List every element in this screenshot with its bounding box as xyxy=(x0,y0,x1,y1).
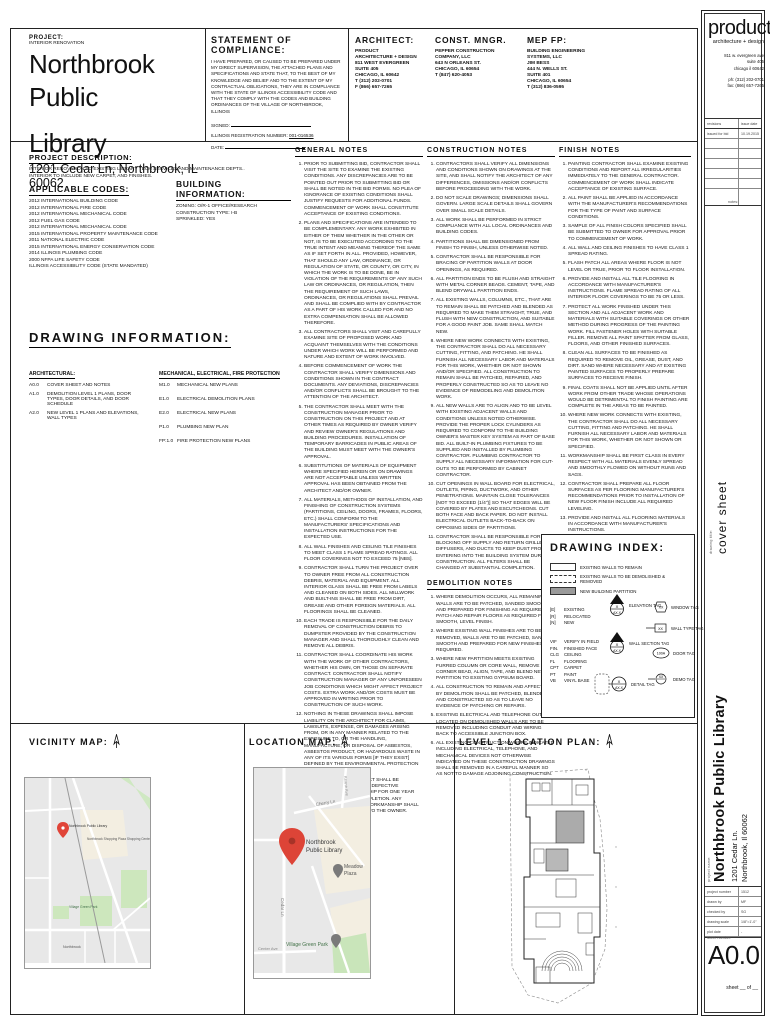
location-map: Northbrook Public Library Cherry Ln Ceda… xyxy=(253,767,371,979)
sheet-of: sheet __ of __ xyxy=(705,985,761,991)
drawing-index-box: DRAWING INDEX: EXISTING WALLS TO REMAIN … xyxy=(541,534,695,718)
architectural-heading: ARCHITECTURAL: xyxy=(29,371,75,379)
wall-type-tag-icon: XX WALL TYPE TAG xyxy=(646,623,704,633)
mep-title: MEP FP: xyxy=(527,35,613,45)
architect-lines: PRODUCTARCHITECTURE + DESIGN811 WEST EVE… xyxy=(355,49,433,90)
compliance-block: STATEMENT OF COMPLIANCE: I HAVE PREPARED… xyxy=(211,35,343,151)
svg-text:100A: 100A xyxy=(657,652,666,656)
construction-manager-block: CONST. MNGR. PEPPER CONSTRUCTIONCOMPANY,… xyxy=(435,35,521,79)
legend-existing-wall-label: EXISTING WALLS TO REMAIN xyxy=(580,565,642,570)
mep-drawings-list: M1.0MECHANICAL NEW PLANSE1.0ELECTRICAL D… xyxy=(159,383,289,444)
drawing-information-title: DRAWING INFORMATION: xyxy=(29,330,231,348)
building-information-title: BUILDING INFORMATION: xyxy=(176,179,291,201)
header-divider-2 xyxy=(348,29,349,141)
applicable-codes-title: APPLICABLE CODES: xyxy=(29,184,129,196)
general-notes-title: GENERAL NOTES xyxy=(295,147,423,157)
project-name-area: project name: Northbrook Public Library … xyxy=(705,562,763,882)
svg-text:XX: XX xyxy=(659,606,664,610)
level1-plan-graphic xyxy=(510,769,617,1003)
mep-fp-block: MEP FP: BUILDING ENGINEERINGSYSTEMS, LLC… xyxy=(527,35,613,91)
main-drawing-frame: PROJECT: INTERIOR RENOVATION Northbrook … xyxy=(10,28,698,1015)
demolition-notes-list: WHERE DEMOLITION OCCURS, ALL REMAINING W… xyxy=(427,595,555,778)
maps-divider-1 xyxy=(244,723,245,1014)
drawing-title: cover sheet xyxy=(715,399,729,554)
maps-divider-2 xyxy=(454,723,455,1014)
construction-notes-title: CONSTRUCTION NOTES xyxy=(427,147,555,157)
center-ave-label: Center Ave xyxy=(258,946,278,951)
meadow-plaza-label-1: Meadow xyxy=(344,864,363,870)
legend-demolished-wall-label: EXISTING WALLS TO BE DEMOLISHED & REMOVE… xyxy=(580,574,680,584)
firm-logo: product xyxy=(708,18,764,38)
construction-notes-list: CONTRACTORS SHALL VERIFY ALL DIMENSIONS … xyxy=(427,162,555,572)
maps-band-separator xyxy=(11,723,697,724)
firm-logo-block: product architecture + design 811 w. eve… xyxy=(705,18,767,89)
mep-heading: MECHANICAL, ELECTRICAL, FIRE PROTECTION xyxy=(159,371,280,379)
revision-table: revisionsissue date issued for bid10.19.… xyxy=(705,118,761,206)
finish-notes-title: FINISH NOTES xyxy=(559,147,691,157)
firm-fax: fax: (866) 657-7265 xyxy=(708,83,764,89)
applicable-codes-section: APPLICABLE CODES: 2012 INTERNATIONAL BUI… xyxy=(29,179,169,271)
north-arrow-icon xyxy=(605,734,614,749)
mep-lines: BUILDING ENGINEERINGSYSTEMS, LLCJIM BESS… xyxy=(527,49,613,90)
svg-text:XX: XX xyxy=(659,675,664,679)
project-name-label: project name: xyxy=(707,562,711,882)
svg-text:X: X xyxy=(616,604,619,609)
const-mngr-title: CONST. MNGR. xyxy=(435,35,521,45)
firm-tagline: architecture + design xyxy=(708,39,764,45)
const-mngr-lines: PEPPER CONSTRUCTIONCOMPANY, LLC643 N ORL… xyxy=(435,49,521,78)
status-abbreviations: [E]EXISTING[R]RELOCATED[N]NEW xyxy=(550,607,605,627)
demo-tag-label: DEMO TAG xyxy=(673,677,695,682)
finish-notes-list: PAINTING CONTRACTOR SHALL EXAMINE EXISTI… xyxy=(559,162,691,535)
location-library-label-1: Northbrook xyxy=(306,840,337,846)
project-description-title: PROJECT DESCRIPTION: xyxy=(29,153,132,164)
svg-text:AX.X: AX.X xyxy=(613,611,621,615)
title-block: product architecture + design 811 w. eve… xyxy=(701,10,765,1016)
firm-address: 811 w. evergreen ave suite 405 chicago i… xyxy=(708,53,764,89)
drawing-information-section: DRAWING INFORMATION: ARCHITECTURAL: A0.0… xyxy=(29,329,291,453)
window-tag-icon: XX WINDOW TAG xyxy=(654,601,699,613)
header-band: PROJECT: INTERIOR RENOVATION Northbrook … xyxy=(11,29,697,142)
project-name-vertical: Northbrook Public Library xyxy=(712,562,728,882)
compliance-body: I HAVE PREPARED, OR CAUSED TO BE PREPARE… xyxy=(211,59,343,115)
drawing-title-area: drawing title: cover sheet xyxy=(705,399,765,554)
sheet-number-area: sheet number: A0.0 sheet __ of __ xyxy=(705,934,761,991)
drawing-info-mep: MECHANICAL, ELECTRICAL, FIRE PROTECTION … xyxy=(159,362,289,453)
revision-rows: issued for bid10.19.2015 xyxy=(705,129,761,189)
level1-plan-title: LEVEL 1 LOCATION PLAN: xyxy=(459,734,614,749)
compliance-signed: SIGNED: xyxy=(211,121,343,129)
legend-new-partition-swatch xyxy=(550,587,576,595)
window-tag-label: WINDOW TAG xyxy=(671,605,699,610)
revision-table-header: revisionsissue date xyxy=(705,119,761,129)
svg-text:X: X xyxy=(616,642,619,647)
header-divider-1 xyxy=(205,29,206,141)
vicinity-map-title: VICINITY MAP: xyxy=(29,734,121,749)
compliance-reg: ILLINOIS REGISTRATION NUMBER: 001-016536 xyxy=(211,133,343,139)
svg-text:X: X xyxy=(618,679,621,684)
wall-section-tag-label: WALL SECTION TAG xyxy=(629,641,669,646)
door-tag-label: DOOR TAG xyxy=(673,651,695,656)
project-description-section: PROJECT DESCRIPTION: INTERIOR RENOVATION… xyxy=(29,147,291,180)
architect-title: ARCHITECT: xyxy=(355,35,433,45)
svg-text:AX.X: AX.X xyxy=(613,649,621,653)
project-name: Northbrook Public Library xyxy=(29,48,204,160)
detail-tag-icon: XAX.X DETAIL TAG xyxy=(594,671,655,697)
vicinity-library-label: Northbrook Public Library xyxy=(69,824,108,828)
project-address-vertical: 1201 Cedar Ln.Northbrook, Il 60062 xyxy=(730,562,750,882)
village-green-park-label: Village Green Park xyxy=(286,942,328,948)
location-library-label-2: Public Library xyxy=(306,848,342,854)
general-notes-column: GENERAL NOTES PRIOR TO SUBMITTING BID, C… xyxy=(295,147,423,818)
architectural-drawings-list: A0.0COVER SHEET AND NOTESA1.0DEMOLITION … xyxy=(29,383,149,421)
vicinity-map-graphic xyxy=(25,778,150,963)
north-arrow-icon xyxy=(112,734,121,749)
drawing-index-title: DRAWING INDEX: xyxy=(550,542,665,554)
cedar-ln-label: Cedar Ln xyxy=(280,898,285,917)
vicinity-map: Northbrook Public Library Northbrook Sho… xyxy=(24,777,151,969)
meadow-plaza-label-2: Plaza xyxy=(344,871,357,877)
wall-type-tag-label: WALL TYPE TAG xyxy=(671,626,704,631)
vicinity-town-label: Northbrook xyxy=(63,945,81,949)
drawing-info-architectural: ARCHITECTURAL: A0.0COVER SHEET AND NOTES… xyxy=(29,362,149,453)
vicinity-park-label: Village Green Park xyxy=(69,905,98,909)
north-arrow-icon xyxy=(340,734,349,749)
drawing-title-label: drawing title: xyxy=(709,399,713,554)
signature-line xyxy=(231,121,311,127)
project-description-lines: INTERIOR RENOVATION TO EXISTING LIBRARY … xyxy=(29,167,291,179)
building-information-list: ZONING: O/R-1 OFFICE/RESEARCHCONSTRUCTIO… xyxy=(176,204,291,222)
svg-text:AX.X: AX.X xyxy=(615,686,623,690)
demo-tag-icon: XX DEMO TAG xyxy=(648,673,695,685)
legend-existing-wall-swatch xyxy=(550,563,576,571)
general-notes-list: PRIOR TO SUBMITTING BID, CONTRACTOR SHAL… xyxy=(295,162,423,815)
door-tag-icon: 100A DOOR TAG xyxy=(652,647,695,659)
compliance-title: STATEMENT OF COMPLIANCE: xyxy=(211,35,343,55)
legend-demolished-wall-swatch xyxy=(550,575,576,583)
vicinity-plaza-label: Northbrook Shopping Plaza Shopping Cente… xyxy=(87,837,150,841)
building-information-section: BUILDING INFORMATION: ZONING: O/R-1 OFFI… xyxy=(176,179,291,224)
project-subtitle: INTERIOR RENOVATION xyxy=(29,41,204,46)
demolition-notes-title: DEMOLITION NOTES xyxy=(427,580,555,590)
sheet-number: A0.0 xyxy=(705,940,761,971)
level1-location-plan xyxy=(471,757,671,1024)
architect-block: ARCHITECT: PRODUCTARCHITECTURE + DESIGN8… xyxy=(355,35,433,91)
cover-sheet-page: PROJECT: INTERIOR RENOVATION Northbrook … xyxy=(0,0,770,1024)
notes-area: notes: xyxy=(705,200,761,204)
svg-text:XX: XX xyxy=(658,627,663,631)
applicable-codes-list: 2012 INTERNATIONAL BUILDING CODE2012 INT… xyxy=(29,199,169,269)
location-map-title: LOCATION MAP: xyxy=(249,734,349,749)
sheet-info-table: project number1512drawn byMFchecked bySG… xyxy=(705,886,761,938)
construction-notes-column: CONSTRUCTION NOTES CONTRACTORS SHALL VER… xyxy=(427,147,555,782)
